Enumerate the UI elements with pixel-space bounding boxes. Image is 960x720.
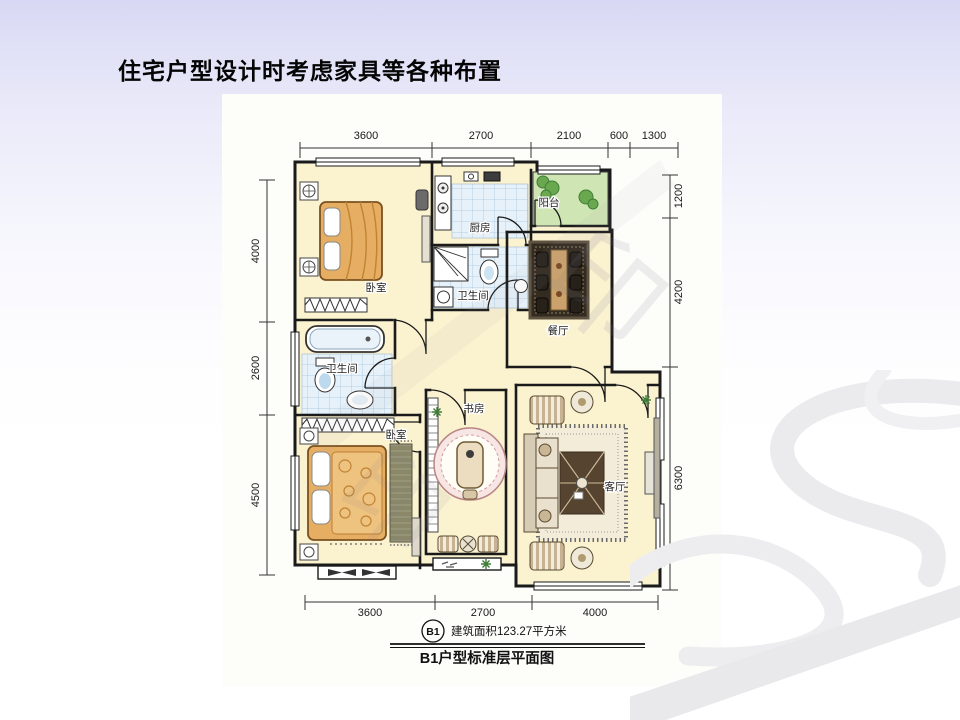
toilet-icon (481, 249, 498, 257)
slide-title: 住宅户型设计时考虑家具等各种布置 (118, 52, 502, 86)
dresser-icon (422, 216, 430, 262)
plant-icon (432, 407, 442, 417)
slide-background: 住宅户型设计时考虑家具等各种布置 (0, 0, 960, 720)
dim-top-3: 600 (610, 130, 628, 142)
dim-left-2: 4500 (250, 483, 262, 507)
room-living-label: 客厅 (605, 480, 626, 493)
armchair-icon (478, 536, 498, 552)
counter-appliance-icon (464, 172, 478, 181)
dimension-line-top (300, 142, 678, 158)
armchair-icon (438, 536, 458, 552)
washer-icon (434, 287, 453, 307)
room-kitchen-label: 厨房 (470, 221, 491, 234)
plant-icon (481, 559, 491, 569)
armchair-icon (530, 396, 564, 424)
dim-top-1: 2700 (469, 130, 493, 142)
counter-appliance-icon (484, 172, 500, 181)
dim-top-2: 2100 (557, 130, 581, 142)
dim-bottom-2: 4000 (583, 607, 607, 619)
room-study-label: 书房 (464, 402, 485, 415)
room-bathroom-2-label: 卫生间 (326, 362, 358, 375)
coffee-table-icon (577, 478, 588, 489)
dim-right-0: 1200 (673, 184, 685, 208)
desk-icon (457, 442, 483, 488)
unit-badge-label: B1 (426, 626, 440, 638)
room-bedroom-1-label: 卧室 (366, 281, 387, 294)
caption-title: B1户型标准层平面图 (420, 649, 555, 667)
dim-top-0: 3600 (354, 130, 378, 142)
dim-bottom-1: 2700 (471, 607, 495, 619)
decorative-swirls (630, 370, 960, 720)
plan-caption: B1 建筑面积123.27平方米 B1户型标准层平面图 (390, 620, 645, 667)
dim-left-1: 2600 (250, 356, 262, 380)
ac-unit-icon (416, 190, 428, 210)
room-balcony-label: 阳台 (539, 196, 560, 209)
bay-window-study (433, 558, 501, 570)
armchair-icon (530, 542, 564, 570)
dim-top-4: 1300 (642, 130, 666, 142)
dim-bottom-0: 3600 (358, 607, 382, 619)
nightstand-icon (300, 544, 318, 560)
caption-area-text: 建筑面积123.27平方米 (451, 624, 567, 638)
dim-left-0: 4000 (250, 239, 262, 263)
